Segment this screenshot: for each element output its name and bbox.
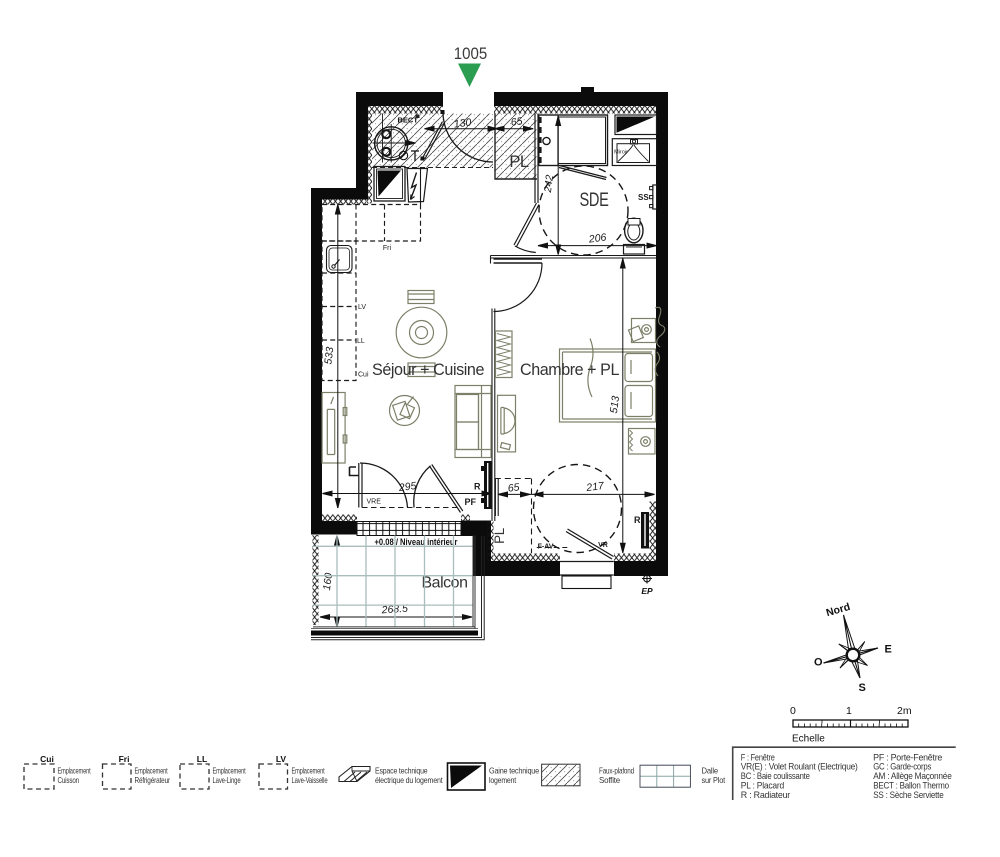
svg-text:Soffite: Soffite	[599, 776, 621, 785]
svg-text:logement: logement	[489, 776, 517, 785]
svg-text:Cui: Cui	[358, 372, 369, 379]
svg-text:S: S	[859, 682, 866, 694]
svg-text:R : Radiateur: R : Radiateur	[741, 790, 791, 800]
svg-text:Cuisson: Cuisson	[58, 776, 80, 785]
svg-text:295: 295	[397, 480, 417, 494]
svg-text:PL: PL	[492, 527, 507, 544]
svg-text:PL: PL	[509, 153, 529, 171]
svg-text:Chambre + PL: Chambre + PL	[520, 361, 619, 379]
svg-text:LV: LV	[358, 304, 366, 311]
svg-text:Emplacement: Emplacement	[292, 767, 326, 776]
svg-text:Fri: Fri	[383, 245, 392, 252]
svg-text:Emplacement: Emplacement	[213, 767, 247, 776]
svg-text:Fri: Fri	[119, 754, 130, 764]
svg-text:206: 206	[587, 231, 607, 245]
svg-text:1: 1	[846, 705, 852, 717]
svg-text:sur Plot: sur Plot	[702, 776, 726, 785]
svg-text:533: 533	[322, 346, 336, 365]
svg-text:Lave-Linge: Lave-Linge	[213, 776, 241, 785]
svg-text:65: 65	[510, 115, 523, 128]
svg-text:160: 160	[321, 572, 335, 591]
svg-text:SS : Sèche Serviette: SS : Sèche Serviette	[873, 790, 944, 800]
svg-text:électrique du logement: électrique du logement	[375, 776, 443, 785]
svg-text:Cui: Cui	[40, 754, 54, 764]
svg-text:242: 242	[542, 174, 556, 194]
svg-text:217: 217	[585, 480, 606, 494]
svg-text:1005: 1005	[454, 45, 488, 63]
svg-text:Echelle: Echelle	[792, 734, 825, 745]
svg-text:Espace technique: Espace technique	[375, 767, 428, 776]
svg-text:BECT: BECT	[398, 116, 419, 125]
svg-text:VR: VR	[598, 542, 608, 549]
svg-text:2m: 2m	[897, 705, 912, 717]
svg-text:F-AV: F-AV	[538, 544, 554, 551]
svg-text:PF: PF	[465, 497, 477, 507]
svg-text:E: E	[885, 644, 892, 656]
svg-text:Gaine technique: Gaine technique	[489, 767, 540, 776]
svg-text:Faux-plafond: Faux-plafond	[599, 767, 634, 776]
svg-text:LL: LL	[357, 338, 365, 345]
svg-text:Miroir: Miroir	[614, 150, 628, 156]
svg-text:Dalle: Dalle	[702, 767, 719, 776]
svg-text:SS: SS	[638, 193, 649, 202]
svg-text:VRE: VRE	[367, 499, 382, 506]
svg-text:Séjour + Cuisine: Séjour + Cuisine	[372, 361, 484, 379]
svg-text:0: 0	[790, 705, 796, 717]
svg-text:130: 130	[453, 116, 472, 130]
svg-text:+0.08 / Niveau intérieur: +0.08 / Niveau intérieur	[375, 537, 458, 547]
svg-text:LV: LV	[276, 754, 287, 764]
svg-text:SDE: SDE	[580, 190, 609, 211]
svg-text:R: R	[634, 515, 641, 525]
svg-text:R: R	[474, 482, 481, 492]
svg-text:Balcon: Balcon	[422, 575, 468, 592]
svg-text:65: 65	[507, 481, 520, 494]
svg-text:Réfrigérateur: Réfrigérateur	[135, 776, 171, 785]
svg-text:513: 513	[608, 395, 622, 414]
svg-text:LL: LL	[197, 754, 207, 764]
svg-text:Emplacement: Emplacement	[58, 767, 92, 776]
svg-text:Emplacement: Emplacement	[135, 767, 169, 776]
svg-text:Lave-Vaisselle: Lave-Vaisselle	[292, 776, 328, 785]
svg-text:O: O	[814, 657, 823, 669]
svg-text:EP: EP	[641, 586, 653, 596]
